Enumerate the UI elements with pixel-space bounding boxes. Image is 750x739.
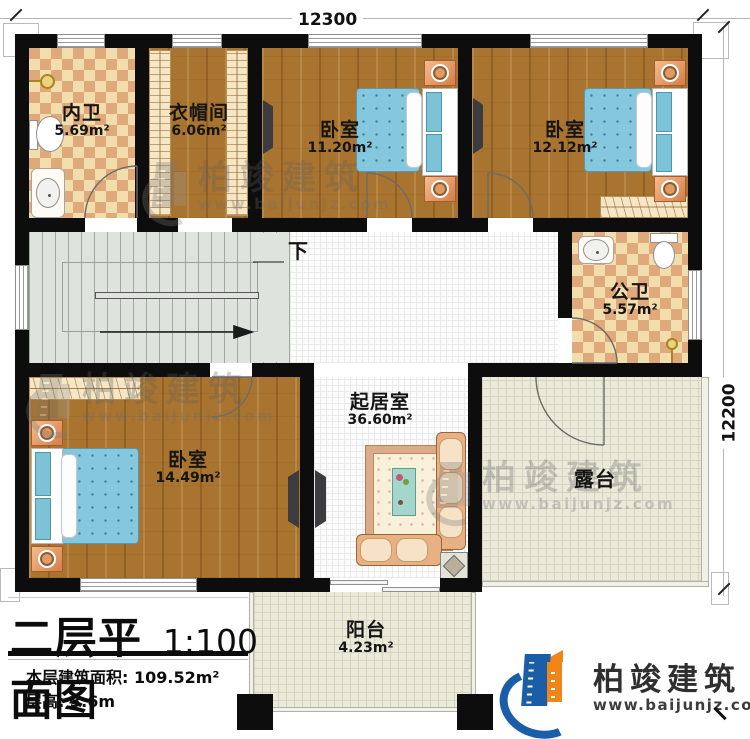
door-arc-bedroom3 <box>212 377 252 417</box>
room-area: 6.06m² <box>149 124 249 140</box>
room-name: 露台 <box>535 468 655 490</box>
door-arc-bedroom2 <box>488 173 533 218</box>
room-label-bedroom1: 卧室 11.20m² <box>280 120 400 157</box>
room-label-bedroom2: 卧室 12.12m² <box>505 120 625 157</box>
stair-direction-label: 下 <box>288 240 309 262</box>
logo-building-icon <box>497 648 583 730</box>
door-arc-terrace <box>536 377 604 445</box>
room-label-terrace: 露台 <box>535 468 655 490</box>
door-arc-bedroom1 <box>367 173 412 218</box>
brand-logo: 柏竣建筑 www.baijunjz.com <box>497 648 750 730</box>
brand-name: 柏竣建筑 <box>593 664 750 697</box>
room-name: 内卫 <box>32 103 132 124</box>
floor-area-value: 109.52m² <box>134 668 219 687</box>
room-label-neiwei: 内卫 5.69m² <box>32 103 132 140</box>
floor-height-value: 3.6m <box>70 692 115 711</box>
door-arc-gongwei <box>572 318 617 363</box>
room-name: 公卫 <box>572 282 688 303</box>
floor-plan-canvas: 12300 12200 <box>0 0 750 739</box>
room-name: 起居室 <box>320 392 440 413</box>
floor-height-line: 层高: 3.6m <box>26 688 115 712</box>
title-block: 二层平面图 1:100 本层建筑面积: 109.52m² 层高: 3.6m <box>8 600 258 710</box>
room-label-balcony: 阳台 4.23m² <box>306 620 426 657</box>
room-area: 11.20m² <box>280 141 400 157</box>
room-label-bedroom3: 卧室 14.49m² <box>128 450 248 487</box>
room-label-cloakroom: 衣帽间 6.06m² <box>149 103 249 140</box>
room-name: 卧室 <box>128 450 248 471</box>
floor-area-line: 本层建筑面积: 109.52m² <box>26 664 219 688</box>
room-area: 5.69m² <box>32 124 132 140</box>
brand-website: www.baijunjz.com <box>593 696 750 714</box>
door-arc-neiwei <box>85 166 137 218</box>
room-name: 衣帽间 <box>149 103 249 124</box>
floor-height-label: 层高: <box>26 692 64 711</box>
room-name: 阳台 <box>306 620 426 641</box>
title-underline-thin <box>8 659 248 660</box>
room-name: 卧室 <box>280 120 400 141</box>
title-underline <box>8 651 248 656</box>
room-label-living: 起居室 36.60m² <box>320 392 440 429</box>
room-area: 12.12m² <box>505 141 625 157</box>
room-name: 卧室 <box>505 120 625 141</box>
stair-direction-arrow-icon <box>234 326 252 338</box>
room-label-gongwei: 公卫 5.57m² <box>572 282 688 319</box>
floor-area-label: 本层建筑面积: <box>26 668 128 687</box>
room-area: 4.23m² <box>306 641 426 657</box>
title-divider <box>8 597 248 598</box>
room-area: 14.49m² <box>128 471 248 487</box>
room-area: 36.60m² <box>320 413 440 429</box>
room-area: 5.57m² <box>572 303 688 319</box>
